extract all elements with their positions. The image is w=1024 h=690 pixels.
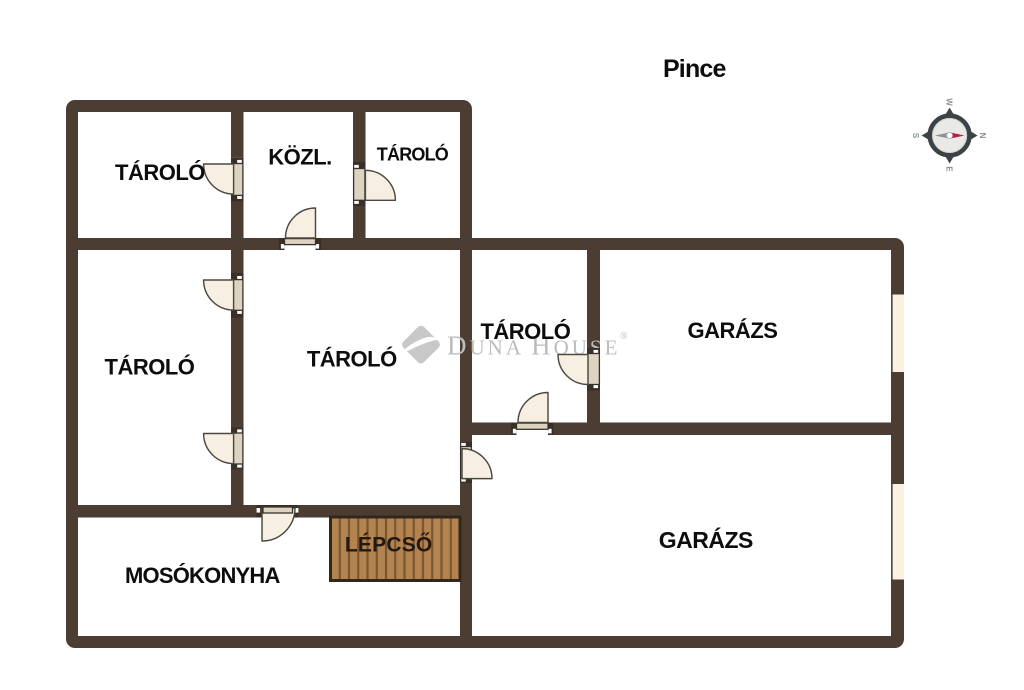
svg-text:W: W bbox=[944, 98, 953, 106]
svg-text:S: S bbox=[911, 133, 920, 139]
svg-text:TÁROLÓ: TÁROLÓ bbox=[307, 347, 397, 372]
svg-text:TÁROLÓ: TÁROLÓ bbox=[115, 160, 205, 185]
svg-text:®: ® bbox=[620, 331, 628, 342]
svg-text:N: N bbox=[978, 133, 987, 139]
svg-text:GARÁZS: GARÁZS bbox=[659, 526, 753, 553]
svg-text:LÉPCSŐ: LÉPCSŐ bbox=[345, 534, 433, 557]
svg-text:TÁROLÓ: TÁROLÓ bbox=[105, 355, 195, 380]
svg-text:TÁROLÓ: TÁROLÓ bbox=[377, 144, 449, 165]
svg-text:MOSÓKONYHA: MOSÓKONYHA bbox=[125, 563, 280, 588]
svg-text:E: E bbox=[944, 166, 953, 172]
svg-text:Pince: Pince bbox=[663, 55, 727, 83]
svg-text:TÁROLÓ: TÁROLÓ bbox=[480, 319, 570, 344]
svg-text:GARÁZS: GARÁZS bbox=[688, 318, 778, 343]
svg-text:KÖZL.: KÖZL. bbox=[268, 145, 332, 170]
